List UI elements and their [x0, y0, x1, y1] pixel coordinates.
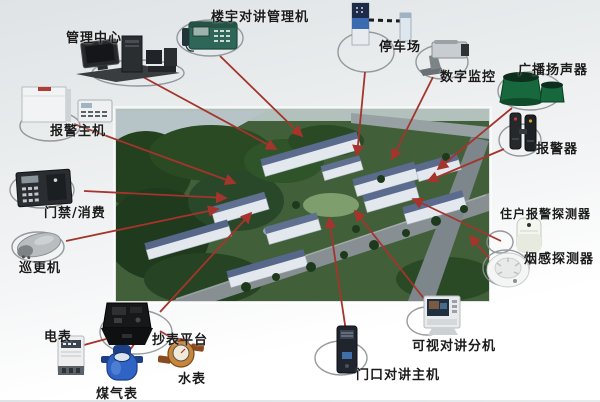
label-electric-meter: 电表: [44, 326, 72, 345]
indoor-monitor-icon: [420, 294, 466, 338]
video-intercom-extension-device: [420, 294, 466, 338]
label-access-control: 门禁/消费: [44, 202, 106, 221]
alarm-host-device: [20, 84, 114, 124]
gas-meter-device: [100, 340, 144, 386]
topology-diagram: 管理中心 楼宇对讲管理机 停车场 数字监控 广播扬声器 报警主机 报警器 门禁/…: [0, 0, 600, 400]
label-alarm-siren: 报警器: [536, 138, 578, 157]
label-meter-platform: 抄表平台: [152, 329, 208, 348]
label-management-center: 管理中心: [66, 27, 122, 46]
label-entrance-intercom: 门口对讲主机: [356, 364, 440, 383]
label-video-extension: 可视对讲分机: [412, 335, 496, 354]
label-gas-meter: 煤气表: [96, 383, 138, 402]
aerial-photo-graphic: [116, 109, 489, 301]
label-resident-detector: 住户报警探测器: [500, 205, 591, 222]
label-parking-lot: 停车场: [379, 36, 421, 55]
alarm-host-icon: [20, 84, 114, 124]
gas-meter-icon: [100, 340, 144, 386]
label-digital-surveillance: 数字监控: [440, 66, 496, 85]
label-building-intercom: 楼宇对讲管理机: [211, 6, 309, 25]
label-broadcast-speaker: 广播扬声器: [518, 59, 588, 78]
site-aerial-photo: [115, 108, 490, 302]
label-smoke-detector: 烟感探测器: [524, 248, 594, 267]
label-alarm-host: 报警主机: [50, 120, 106, 139]
label-patrol-reader: 巡更机: [19, 257, 61, 276]
label-water-meter: 水表: [178, 368, 206, 387]
